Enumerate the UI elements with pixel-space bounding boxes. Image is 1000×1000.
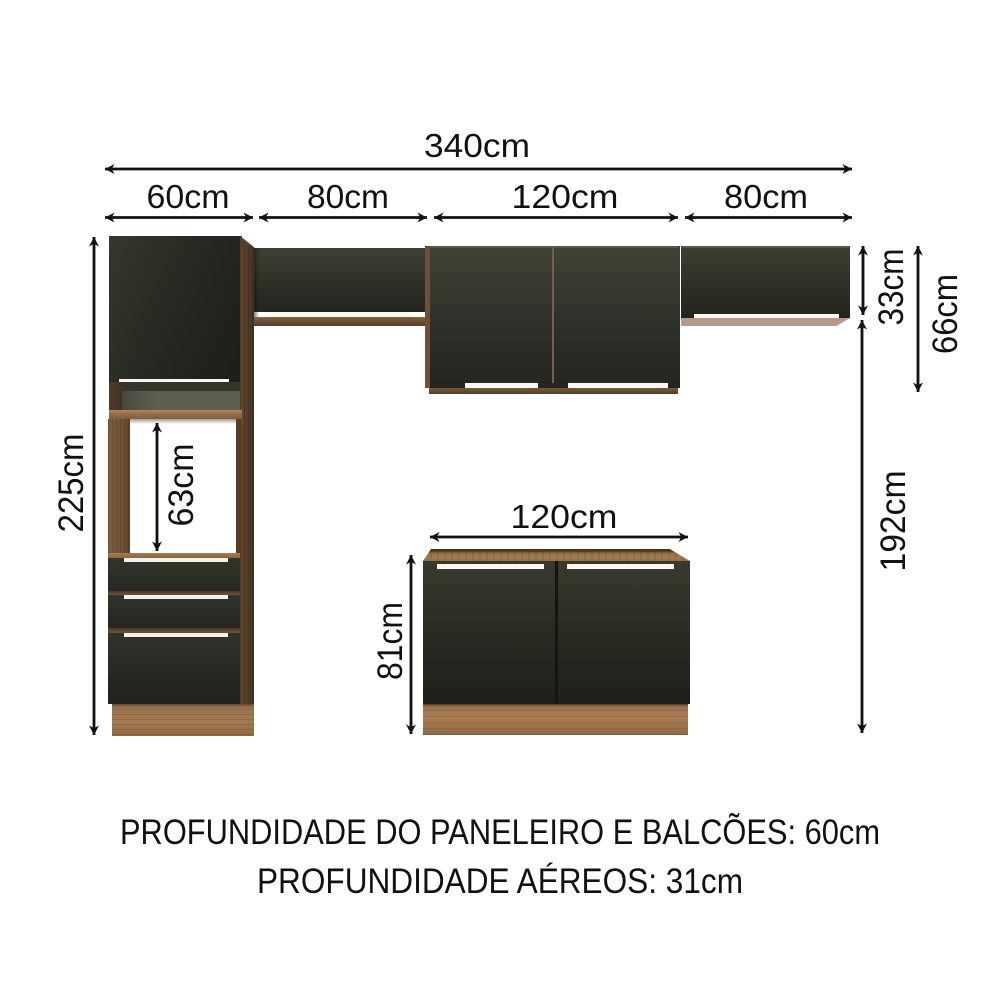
svg-text:PROFUNDIDADE DO PANELEIRO E BA: PROFUNDIDADE DO PANELEIRO E BALCÕES: 60c… bbox=[120, 812, 880, 852]
svg-text:33cm: 33cm bbox=[872, 249, 911, 326]
svg-text:340cm: 340cm bbox=[424, 127, 530, 164]
svg-text:80cm: 80cm bbox=[307, 178, 389, 215]
svg-text:80cm: 80cm bbox=[724, 178, 808, 215]
svg-text:60cm: 60cm bbox=[147, 178, 230, 215]
svg-text:120cm: 120cm bbox=[511, 498, 618, 535]
svg-text:PROFUNDIDADE AÉREOS: 31cm: PROFUNDIDADE AÉREOS: 31cm bbox=[257, 862, 743, 901]
svg-text:192cm: 192cm bbox=[874, 471, 913, 572]
svg-text:81cm: 81cm bbox=[371, 602, 410, 680]
svg-text:120cm: 120cm bbox=[512, 178, 619, 215]
svg-text:66cm: 66cm bbox=[926, 274, 965, 354]
svg-text:225cm: 225cm bbox=[52, 434, 91, 533]
svg-text:63cm: 63cm bbox=[162, 444, 201, 527]
